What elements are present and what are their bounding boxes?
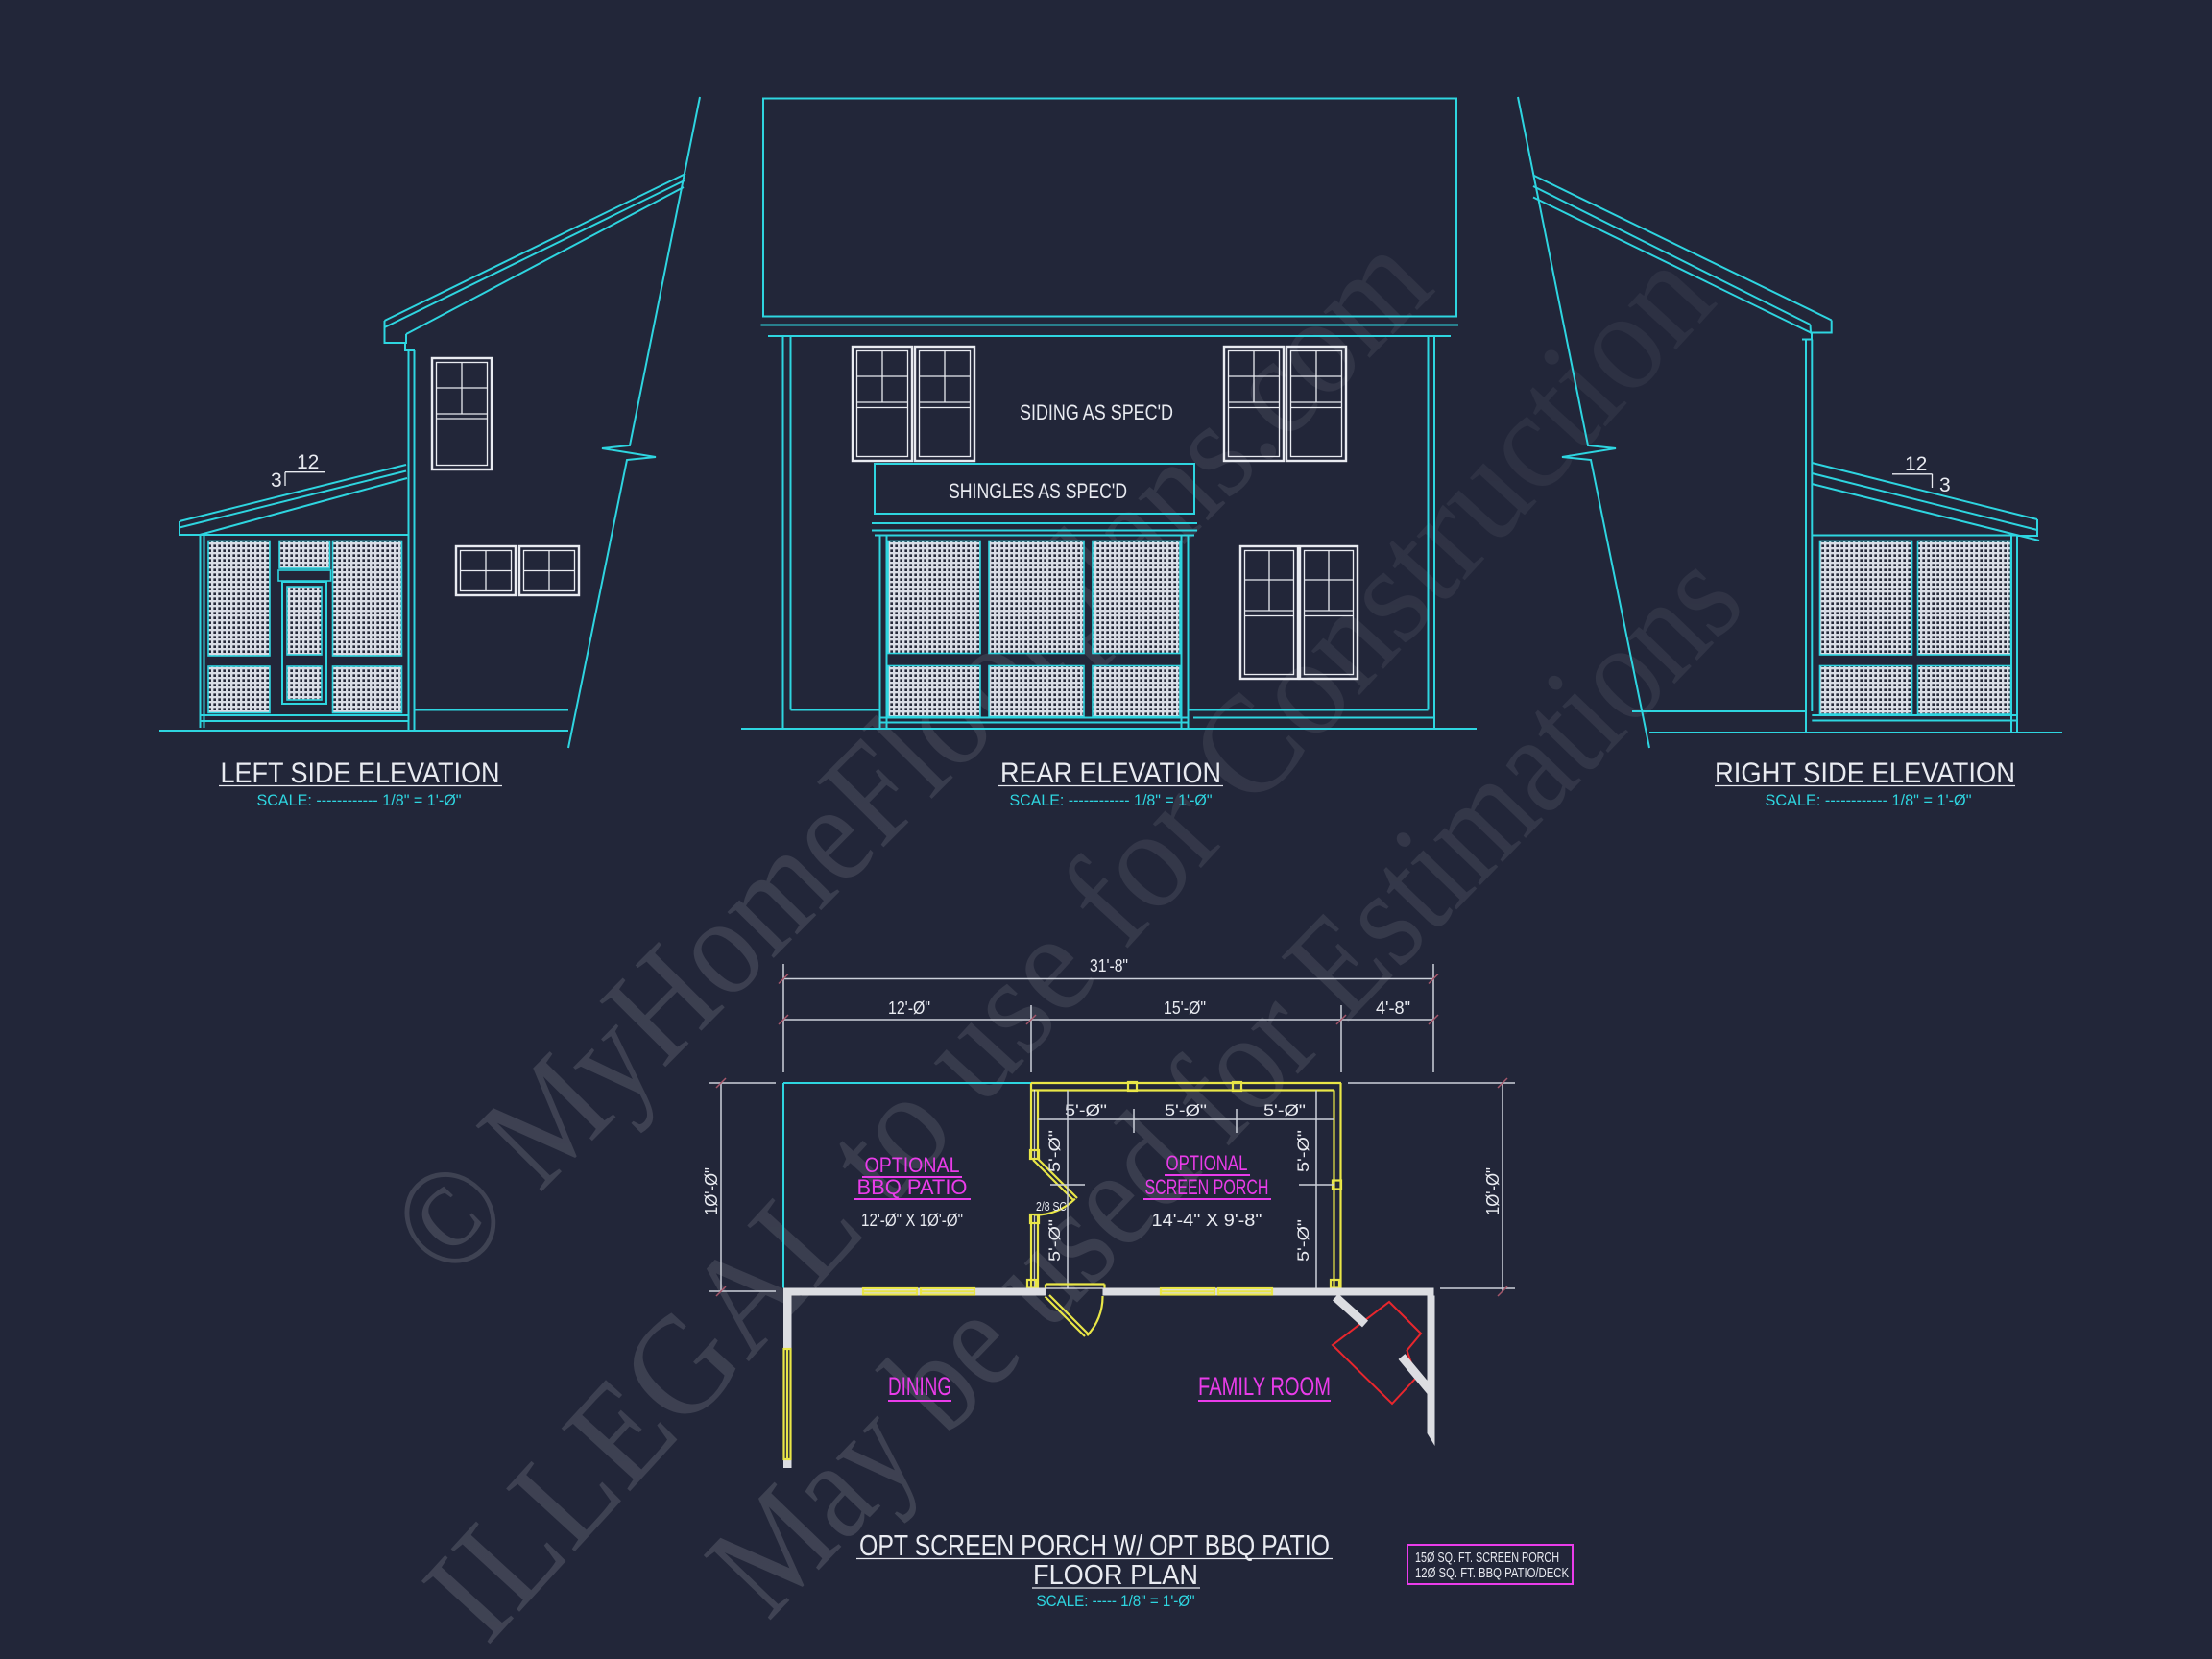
svg-text:SIDING AS SPEC'D: SIDING AS SPEC'D [1020,400,1173,424]
svg-text:RIGHT SIDE ELEVATION: RIGHT SIDE ELEVATION [1715,757,2015,789]
svg-text:BBQ PATIO: BBQ PATIO [857,1175,968,1199]
svg-text:15'-Ø": 15'-Ø" [1164,998,1206,1018]
svg-text:5'-Ø": 5'-Ø" [1046,1130,1064,1172]
svg-text:SCREEN PORCH: SCREEN PORCH [1145,1175,1269,1199]
svg-text:14'-4" X 9'-8": 14'-4" X 9'-8" [1152,1211,1262,1230]
svg-text:SCALE: ------------ 1/8" = 1'-: SCALE: ------------ 1/8" = 1'-Ø" [1766,791,1972,809]
svg-text:5'-Ø": 5'-Ø" [1046,1219,1064,1262]
svg-text:REAR ELEVATION: REAR ELEVATION [1000,757,1221,789]
svg-text:4'-8": 4'-8" [1376,998,1410,1018]
svg-text:SCALE: ------------ 1/8" = 1'-: SCALE: ------------ 1/8" = 1'-Ø" [257,791,462,809]
svg-text:5'-Ø": 5'-Ø" [1294,1130,1312,1172]
svg-text:1Ø'-Ø": 1Ø'-Ø" [702,1167,721,1215]
svg-text:OPT SCREEN PORCH W/ OPT BBQ PA: OPT SCREEN PORCH W/ OPT BBQ PATIO [859,1528,1330,1562]
svg-text:5'-Ø": 5'-Ø" [1263,1101,1306,1119]
svg-text:1Ø'-Ø": 1Ø'-Ø" [1483,1167,1503,1215]
svg-text:SCALE: ----- 1/8" = 1'-Ø": SCALE: ----- 1/8" = 1'-Ø" [1037,1592,1195,1610]
svg-text:SCALE: ------------ 1/8" = 1'-: SCALE: ------------ 1/8" = 1'-Ø" [1010,791,1213,809]
svg-text:31'-8": 31'-8" [1090,956,1128,975]
svg-text:12: 12 [297,451,319,473]
svg-text:12'-Ø" X 1Ø'-Ø": 12'-Ø" X 1Ø'-Ø" [861,1211,963,1230]
svg-text:15Ø SQ. FT. SCREEN PORCH: 15Ø SQ. FT. SCREEN PORCH [1415,1550,1559,1566]
svg-text:SHINGLES AS SPEC'D: SHINGLES AS SPEC'D [949,479,1127,503]
svg-text:12: 12 [1905,453,1927,475]
svg-text:OPTIONAL: OPTIONAL [1166,1151,1248,1175]
svg-text:FAMILY ROOM: FAMILY ROOM [1198,1372,1331,1401]
svg-text:3: 3 [1939,474,1951,496]
svg-text:5'-Ø": 5'-Ø" [1165,1101,1207,1119]
svg-text:5'-Ø": 5'-Ø" [1065,1101,1107,1119]
svg-text:3: 3 [271,469,282,492]
svg-text:LEFT SIDE ELEVATION: LEFT SIDE ELEVATION [221,757,500,789]
svg-text:5'-Ø": 5'-Ø" [1294,1219,1312,1262]
svg-text:2/8 SC: 2/8 SC [1036,1199,1067,1214]
svg-text:FLOOR PLAN: FLOOR PLAN [1033,1560,1198,1591]
svg-text:DINING: DINING [888,1372,951,1401]
svg-text:12Ø SQ. FT. BBQ PATIO/DECK: 12Ø SQ. FT. BBQ PATIO/DECK [1415,1565,1569,1581]
svg-text:OPTIONAL: OPTIONAL [865,1153,960,1177]
svg-text:12'-Ø": 12'-Ø" [888,998,930,1018]
